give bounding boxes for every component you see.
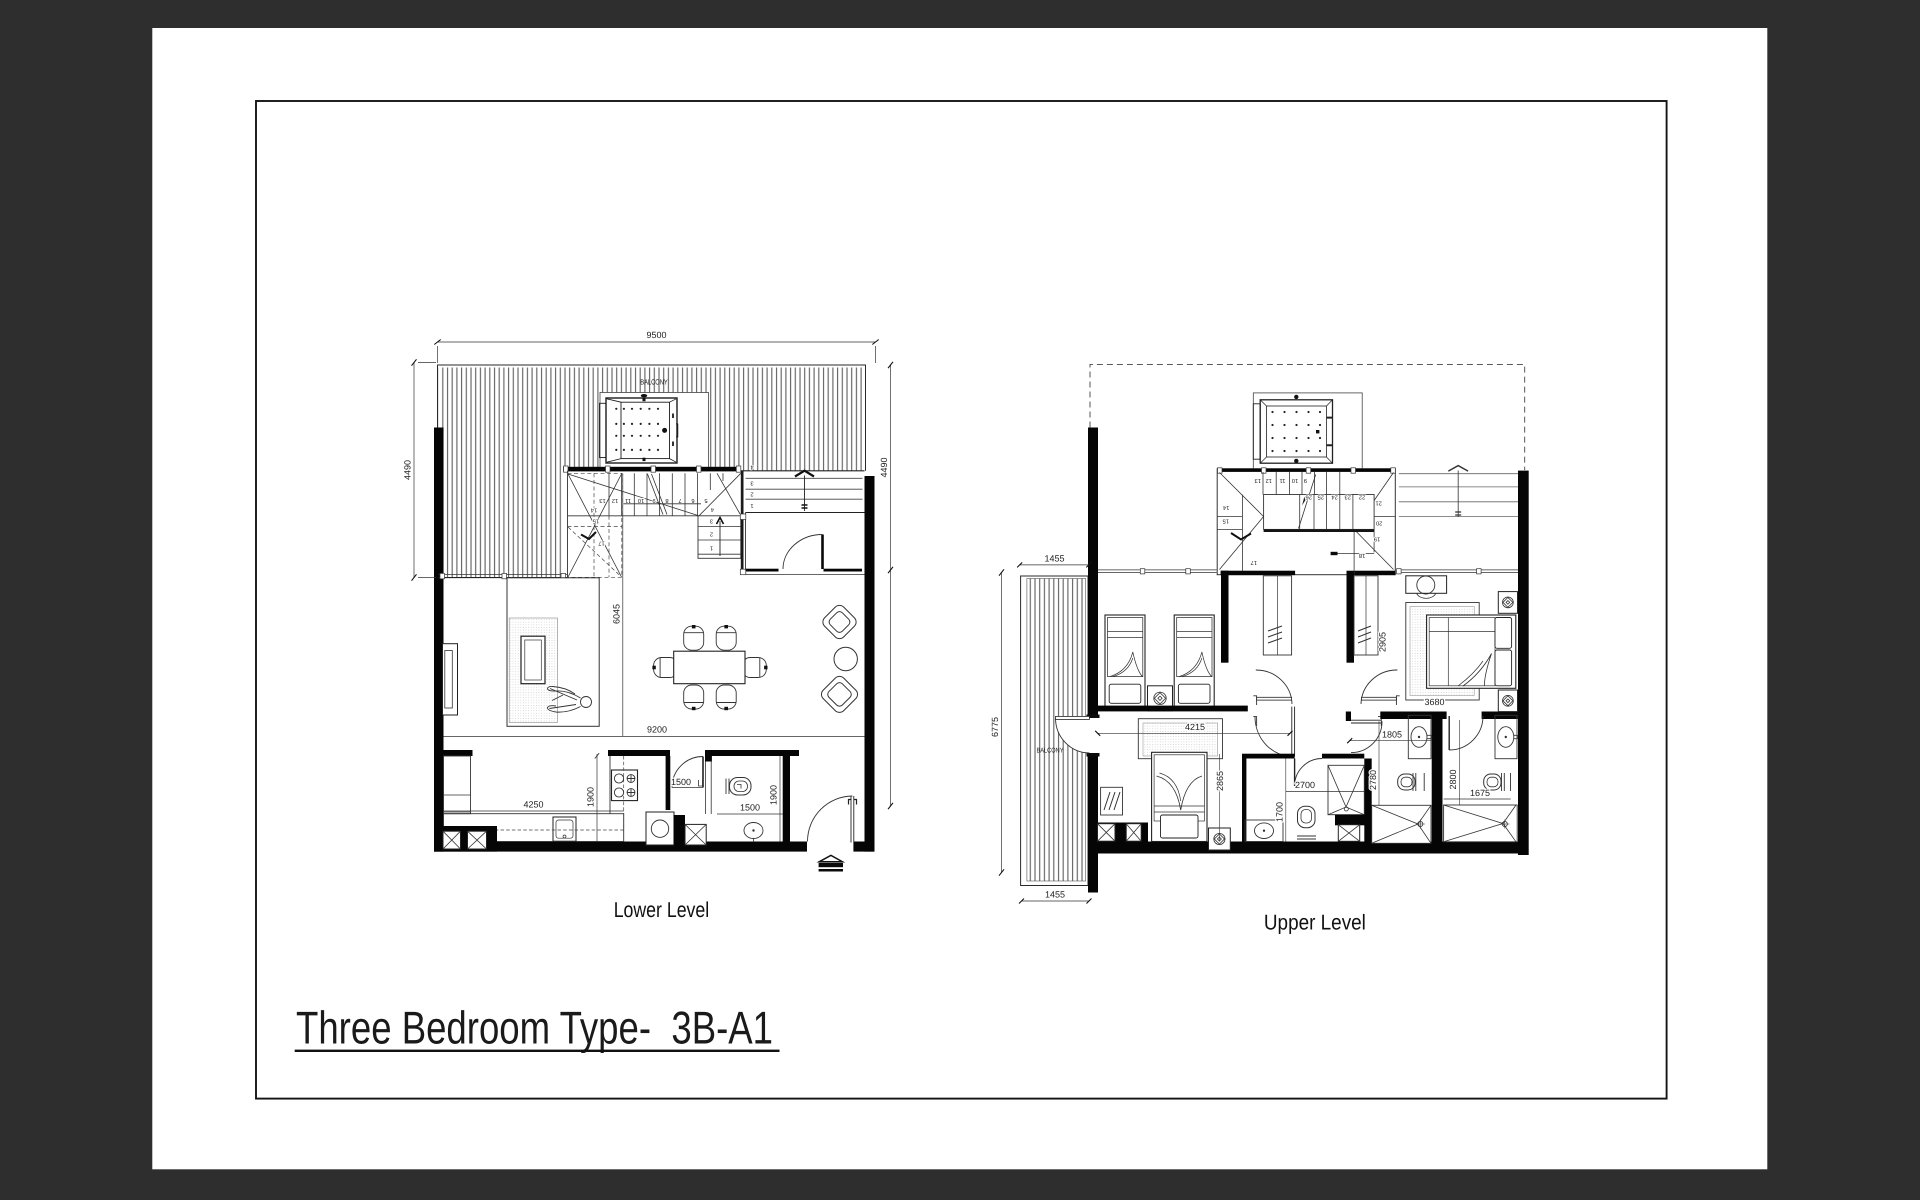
svg-text:1900: 1900 <box>769 785 779 805</box>
svg-text:24: 24 <box>1331 494 1338 501</box>
svg-text:5: 5 <box>704 497 707 503</box>
svg-text:6045: 6045 <box>612 604 622 624</box>
svg-text:10: 10 <box>638 497 644 504</box>
svg-text:BALCONY: BALCONY <box>640 378 668 387</box>
svg-text:4215: 4215 <box>1185 722 1205 732</box>
svg-text:2: 2 <box>710 531 713 538</box>
svg-text:Upper Level: Upper Level <box>1264 911 1366 935</box>
svg-text:3: 3 <box>710 518 713 525</box>
svg-text:15: 15 <box>593 518 599 524</box>
svg-text:1: 1 <box>750 502 753 508</box>
svg-text:2800: 2800 <box>1448 769 1458 789</box>
svg-text:Lower Level: Lower Level <box>614 898 710 922</box>
svg-text:12: 12 <box>612 497 618 504</box>
svg-text:19: 19 <box>1374 536 1380 543</box>
svg-text:2780: 2780 <box>1368 770 1378 790</box>
svg-text:17: 17 <box>598 540 604 546</box>
svg-text:2865: 2865 <box>1215 771 1225 791</box>
svg-text:21: 21 <box>1375 499 1381 506</box>
svg-text:BALCONY: BALCONY <box>1037 748 1064 755</box>
svg-text:1455: 1455 <box>1044 554 1064 564</box>
svg-text:9200: 9200 <box>647 725 667 735</box>
svg-text:8: 8 <box>665 497 668 504</box>
svg-text:9: 9 <box>652 497 655 504</box>
svg-text:1805: 1805 <box>1382 729 1402 739</box>
svg-text:15: 15 <box>1223 518 1229 524</box>
svg-text:9: 9 <box>1304 477 1307 484</box>
svg-text:1900: 1900 <box>586 787 596 807</box>
svg-text:9500: 9500 <box>646 330 666 340</box>
svg-text:26: 26 <box>1306 494 1312 501</box>
svg-text:25: 25 <box>1318 494 1324 501</box>
svg-text:17: 17 <box>1251 559 1257 565</box>
svg-text:18: 18 <box>1359 552 1365 559</box>
svg-text:11: 11 <box>625 497 631 503</box>
svg-text:7: 7 <box>678 497 681 503</box>
svg-text:22: 22 <box>1359 494 1365 501</box>
svg-text:4250: 4250 <box>523 800 543 810</box>
svg-text:6775: 6775 <box>990 717 1000 737</box>
svg-text:20: 20 <box>1376 519 1382 526</box>
svg-text:2: 2 <box>750 491 753 498</box>
svg-text:13: 13 <box>1255 477 1261 484</box>
svg-text:6: 6 <box>691 497 694 504</box>
svg-text:3680: 3680 <box>1424 697 1444 707</box>
svg-text:14: 14 <box>1222 504 1229 510</box>
svg-text:Three Bedroom Type- 3B-A1: Three Bedroom Type- 3B-A1 <box>296 1001 773 1053</box>
svg-text:1: 1 <box>710 545 713 551</box>
svg-text:11: 11 <box>1279 477 1285 483</box>
svg-text:2905: 2905 <box>1378 632 1388 652</box>
svg-text:13: 13 <box>599 497 605 504</box>
svg-text:1455: 1455 <box>1045 890 1065 900</box>
svg-text:1675: 1675 <box>1470 788 1490 798</box>
svg-text:1700: 1700 <box>1275 802 1285 822</box>
svg-text:2700: 2700 <box>1295 780 1315 790</box>
svg-text:4490: 4490 <box>879 457 889 477</box>
svg-text:14: 14 <box>590 507 597 513</box>
svg-text:1500: 1500 <box>740 803 760 813</box>
svg-text:1500: 1500 <box>671 777 691 787</box>
svg-text:10: 10 <box>1292 477 1298 484</box>
svg-text:4490: 4490 <box>403 460 413 480</box>
svg-text:3: 3 <box>750 480 753 487</box>
svg-text:12: 12 <box>1265 477 1271 484</box>
svg-text:23: 23 <box>1345 494 1351 501</box>
